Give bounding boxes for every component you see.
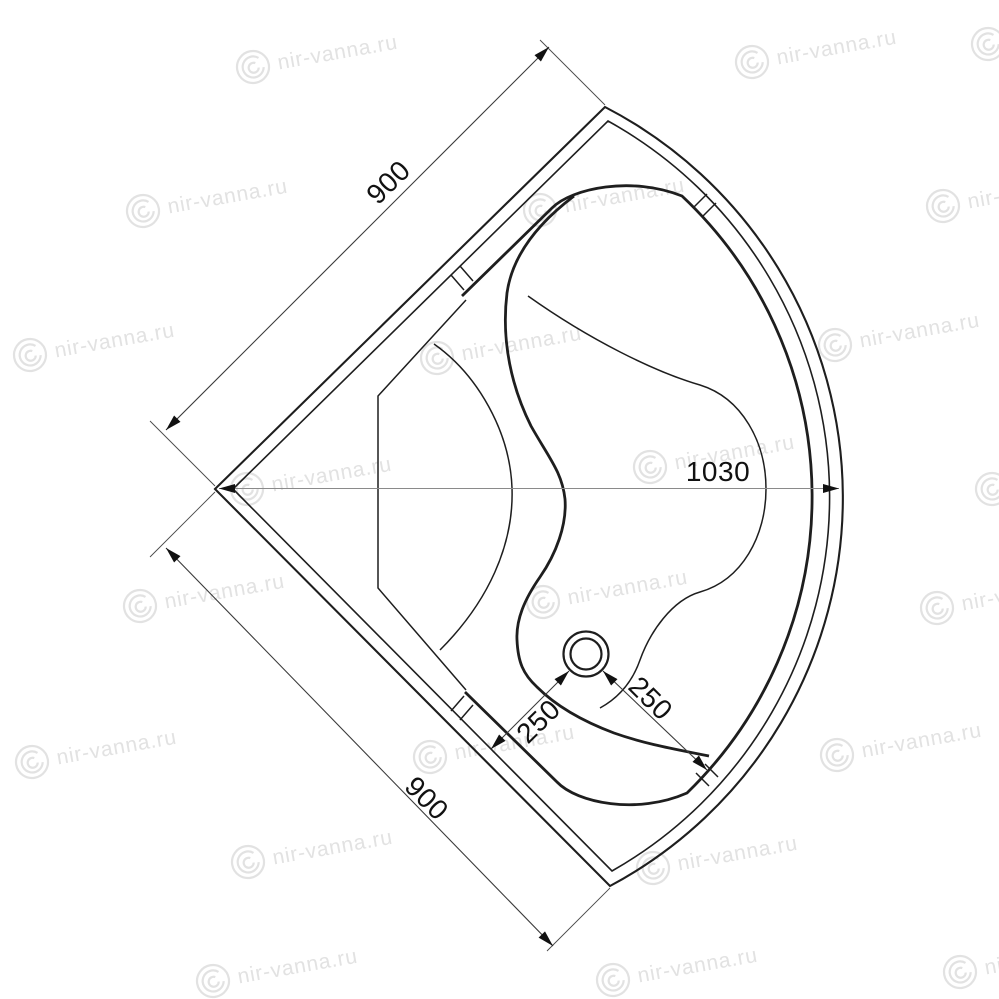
watermark: nir-vanna.ru (924, 165, 999, 225)
watermark-text: nir-vanna.ru (55, 726, 179, 770)
rim-tab-bottom-edge (451, 696, 473, 720)
seat-step-wave (505, 196, 709, 756)
watermark-swirl-icon (425, 346, 449, 370)
watermark-swirl-icon (925, 596, 949, 620)
watermark-logo-icon (818, 736, 855, 773)
basin-outline (462, 186, 812, 805)
screenshot-canvas: nir-vanna.runir-vanna.runir-vanna.runir-… (0, 0, 999, 999)
arrowhead (823, 484, 839, 493)
shower-tray-technical-drawing: nir-vanna.runir-vanna.runir-vanna.runir-… (0, 0, 999, 999)
watermark-logo-icon (973, 470, 999, 507)
watermark-text: nir-vanna.ru (236, 945, 360, 989)
watermark: nir-vanna.ru (194, 940, 360, 999)
dim-label-side-a: 900 (360, 154, 416, 210)
seat-platform-arc (434, 344, 512, 650)
watermark-logo-icon (13, 743, 50, 780)
tray-geometry (215, 107, 843, 886)
watermark-swirl-icon (980, 477, 999, 501)
watermark-logo-icon (11, 336, 48, 373)
watermark-text: nir-vanna.ru (860, 719, 984, 763)
watermark-logo-icon (733, 43, 770, 80)
watermark: nir-vanna.ru (594, 939, 760, 999)
watermark-swirl-icon (131, 199, 155, 223)
watermark-swirl-icon (18, 343, 42, 367)
watermark-swirl-icon (948, 960, 972, 984)
watermark: nir-vanna.ru (524, 561, 690, 621)
watermark-swirl-icon (201, 969, 225, 993)
watermark-swirl-icon (531, 590, 555, 614)
watermark-logo-icon (234, 48, 271, 85)
rim-tabs (451, 194, 718, 786)
watermark-swirl-icon (823, 333, 847, 357)
watermark-layer: nir-vanna.runir-vanna.runir-vanna.runir-… (11, 3, 999, 999)
watermark-text: nir-vanna.ru (163, 570, 287, 614)
watermark-text: nir-vanna.ru (858, 309, 982, 353)
dimension-annotations: 900 900 1030 250 250 (150, 40, 839, 951)
arrowhead (219, 484, 235, 493)
watermark-logo-icon (941, 953, 978, 990)
watermark-text: nir-vanna.ru (983, 936, 999, 980)
watermark-swirl-icon (740, 50, 764, 74)
watermark-logo-icon (594, 961, 631, 998)
watermark-text: nir-vanna.ru (271, 826, 395, 870)
watermark: nir-vanna.ru (969, 3, 999, 63)
drain-inner-circle (571, 639, 602, 670)
floor-depth-contour (528, 296, 766, 708)
watermark-swirl-icon (241, 55, 265, 79)
dim-line-side-a (166, 47, 549, 430)
watermark-text: nir-vanna.ru (676, 832, 800, 876)
dim-label-diagonal: 1030 (686, 456, 750, 487)
watermark: nir-vanna.ru (816, 304, 982, 364)
watermark-logo-icon (521, 191, 558, 228)
watermark-swirl-icon (825, 743, 849, 767)
watermark: nir-vanna.ru (918, 567, 999, 627)
watermark: nir-vanna.ru (234, 26, 400, 86)
watermark: nir-vanna.ru (634, 827, 800, 887)
watermark-swirl-icon (20, 750, 44, 774)
watermark-logo-icon (924, 187, 961, 224)
watermark-text: nir-vanna.ru (775, 26, 899, 70)
watermark-swirl-icon (601, 968, 625, 992)
watermark-text: nir-vanna.ru (276, 31, 400, 75)
watermark-swirl-icon (128, 594, 152, 618)
watermark-swirl-icon (638, 455, 662, 479)
watermark-logo-icon (816, 326, 853, 363)
watermark-logo-icon (229, 843, 266, 880)
watermark-logo-icon (524, 583, 561, 620)
watermark: nir-vanna.ru (941, 931, 999, 991)
watermark: nir-vanna.ru (818, 714, 984, 774)
watermark: nir-vanna.ru (124, 170, 290, 230)
tray-outer-outline (215, 107, 843, 886)
watermark-text: nir-vanna.ru (566, 566, 690, 610)
watermark-text: nir-vanna.ru (563, 174, 687, 218)
watermark-swirl-icon (931, 194, 955, 218)
watermark-text: nir-vanna.ru (966, 170, 999, 214)
watermark: nir-vanna.ru (11, 314, 177, 374)
dim-label-side-b: 900 (399, 770, 455, 826)
watermark-logo-icon (411, 738, 448, 775)
watermark-logo-icon (631, 448, 668, 485)
watermark-swirl-icon (236, 850, 260, 874)
watermark-text: nir-vanna.ru (53, 319, 177, 363)
watermark: nir-vanna.ru (229, 821, 395, 881)
watermark: nir-vanna.ru (13, 721, 179, 781)
rim-tab-top-edge (451, 266, 473, 290)
watermark-text: nir-vanna.ru (636, 944, 760, 988)
watermark-text: nir-vanna.ru (270, 453, 394, 497)
watermark: nir-vanna.ru (733, 21, 899, 81)
watermark: nir-vanna.ru (228, 448, 394, 508)
watermark: nir-vanna.ru (973, 448, 999, 508)
watermark-logo-icon (124, 192, 161, 229)
watermark-logo-icon (194, 962, 231, 999)
watermark-text: nir-vanna.ru (166, 175, 290, 219)
watermark-swirl-icon (418, 745, 442, 769)
watermark-logo-icon (918, 589, 955, 626)
watermark: nir-vanna.ru (121, 565, 287, 625)
drain (564, 632, 609, 677)
watermark-swirl-icon (976, 32, 999, 56)
rim-tab-arc-lower (696, 764, 718, 786)
watermark-text: nir-vanna.ru (460, 322, 584, 366)
watermark-logo-icon (121, 587, 158, 624)
watermark-text: nir-vanna.ru (960, 572, 999, 616)
